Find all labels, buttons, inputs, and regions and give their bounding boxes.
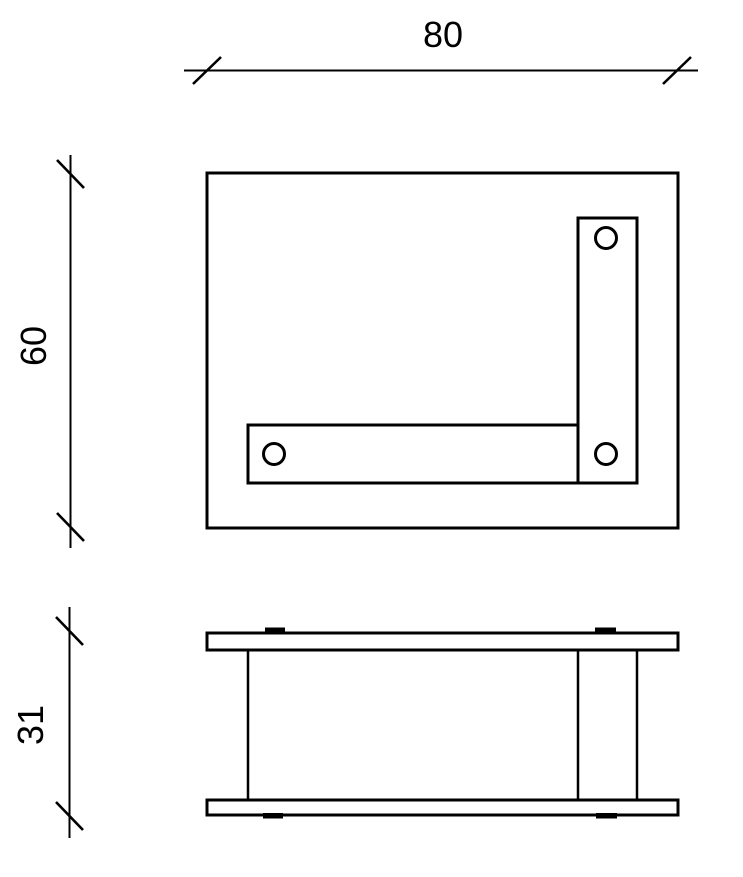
- front-view-top-plate: [207, 633, 678, 650]
- dimension-label-height: 31: [10, 705, 51, 745]
- hole-bottom-right: [596, 444, 617, 465]
- dimension-label-width: 80: [423, 14, 463, 55]
- plan-view: [207, 173, 678, 528]
- hole-left: [264, 444, 285, 465]
- bolt-head-top-left: [265, 628, 285, 634]
- front-view: [207, 628, 678, 819]
- bolt-head-top-right: [595, 628, 616, 634]
- front-view-bottom-plate: [207, 800, 678, 815]
- technical-drawing: 80 60 31: [0, 0, 743, 877]
- bolt-head-bottom-right: [596, 813, 617, 819]
- dimension-width: 80: [184, 14, 698, 84]
- bolt-head-bottom-left: [263, 813, 283, 819]
- bracket-horizontal-arm: [248, 425, 578, 483]
- hole-top-right: [596, 228, 617, 249]
- drawing-sheet: 80 60 31: [0, 0, 743, 877]
- dimension-label-depth: 60: [13, 326, 54, 366]
- dimension-height: 31: [10, 607, 83, 838]
- dimension-depth: 60: [13, 155, 84, 548]
